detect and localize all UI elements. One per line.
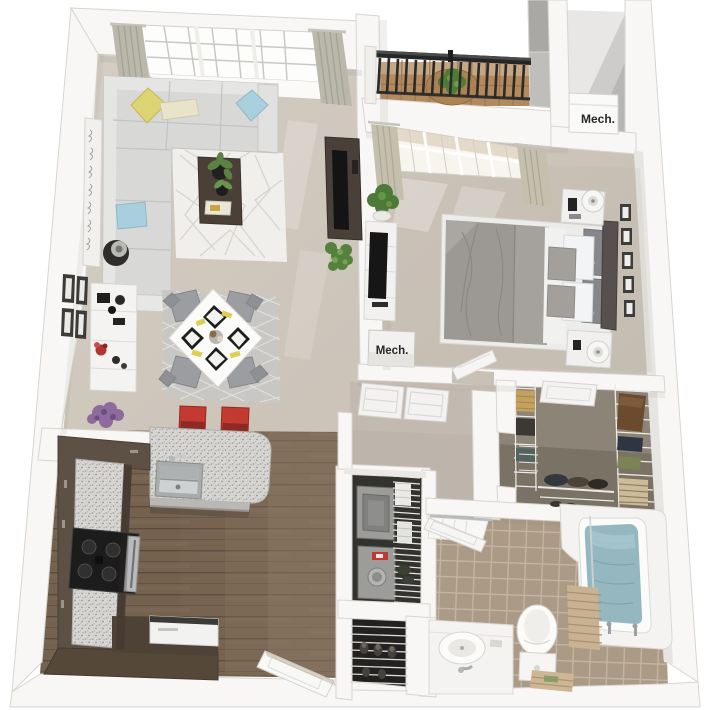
svg-text:Mech.: Mech.: [376, 345, 409, 357]
svg-text:Mech.: Mech.: [581, 112, 615, 126]
